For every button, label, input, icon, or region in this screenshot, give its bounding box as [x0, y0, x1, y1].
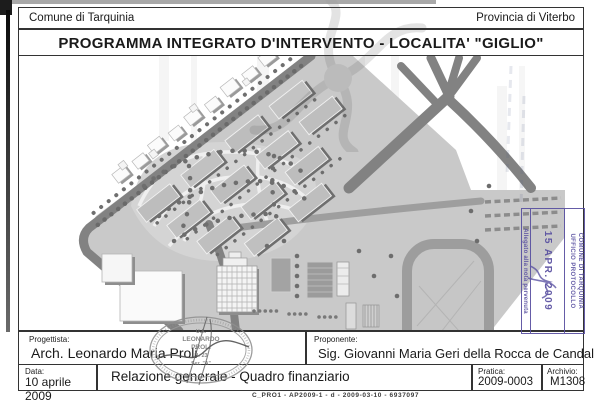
proponente-value: Sig. Giovanni Maria Geri della Rocca de …	[318, 346, 594, 361]
proponente-label: Proponente:	[314, 335, 358, 344]
site-plan-rendering	[19, 56, 584, 331]
protocol-stamp: COMUNE DI TARQUINIA UFFICIO PROTOCOLLO 1…	[521, 208, 585, 334]
archivio-value: M1308	[550, 376, 585, 388]
scanned-document-page: { "header": { "left": "Comune di Tarquin…	[0, 0, 600, 400]
scan-edge-artifact-top	[0, 0, 436, 4]
site-plan-image	[18, 56, 584, 331]
protocol-stamp-body: 15 APR. 2009	[531, 208, 564, 334]
data-value: 10 aprile 2009	[25, 375, 96, 403]
pratica-cell: Pratica: 2009-0003	[472, 365, 541, 390]
comune-label: Comune di Tarquinia	[29, 12, 134, 24]
protocol-signature-scribble	[524, 208, 564, 334]
archivio-cell: Archivio: M1308	[542, 365, 583, 390]
page-title: PROGRAMMA INTEGRATO D'INTERVENTO - LOCAL…	[19, 35, 583, 52]
document-title-band: PROGRAMMA INTEGRATO D'INTERVENTO - LOCAL…	[18, 29, 584, 56]
provincia-label: Provincia di Viterbo	[476, 12, 575, 24]
footer-file-code: C_PRO1 - AP2009-1 - d - 2009-03-10 - 693…	[252, 392, 492, 398]
document-header-band: Comune di Tarquinia Provincia di Viterbo	[18, 7, 584, 29]
info-table-row-2: Data: 10 aprile 2009 Relazione generale …	[18, 365, 584, 391]
pratica-label: Pratica:	[478, 367, 505, 376]
architect-stamp: U.A. LEONARDO PROLI N. 23 Sez. "A"	[143, 311, 261, 391]
proponente-cell: Proponente: Sig. Giovanni Maria Geri del…	[306, 332, 583, 364]
protocol-stamp-office: COMUNE DI TARQUINIA UFFICIO PROTOCOLLO	[564, 208, 585, 334]
svg-text:Sez. "A": Sez. "A"	[191, 361, 211, 367]
data-cell: Data: 10 aprile 2009	[19, 365, 96, 390]
running-track	[407, 244, 489, 331]
scan-edge-artifact-left	[6, 10, 10, 332]
archivio-label: Archivio:	[547, 367, 578, 376]
info-table-row-1: Progettista: Arch. Leonardo Maria Proli …	[18, 331, 584, 365]
pratica-value: 2009-0003	[478, 376, 533, 388]
progettista-label: Progettista:	[29, 335, 69, 344]
